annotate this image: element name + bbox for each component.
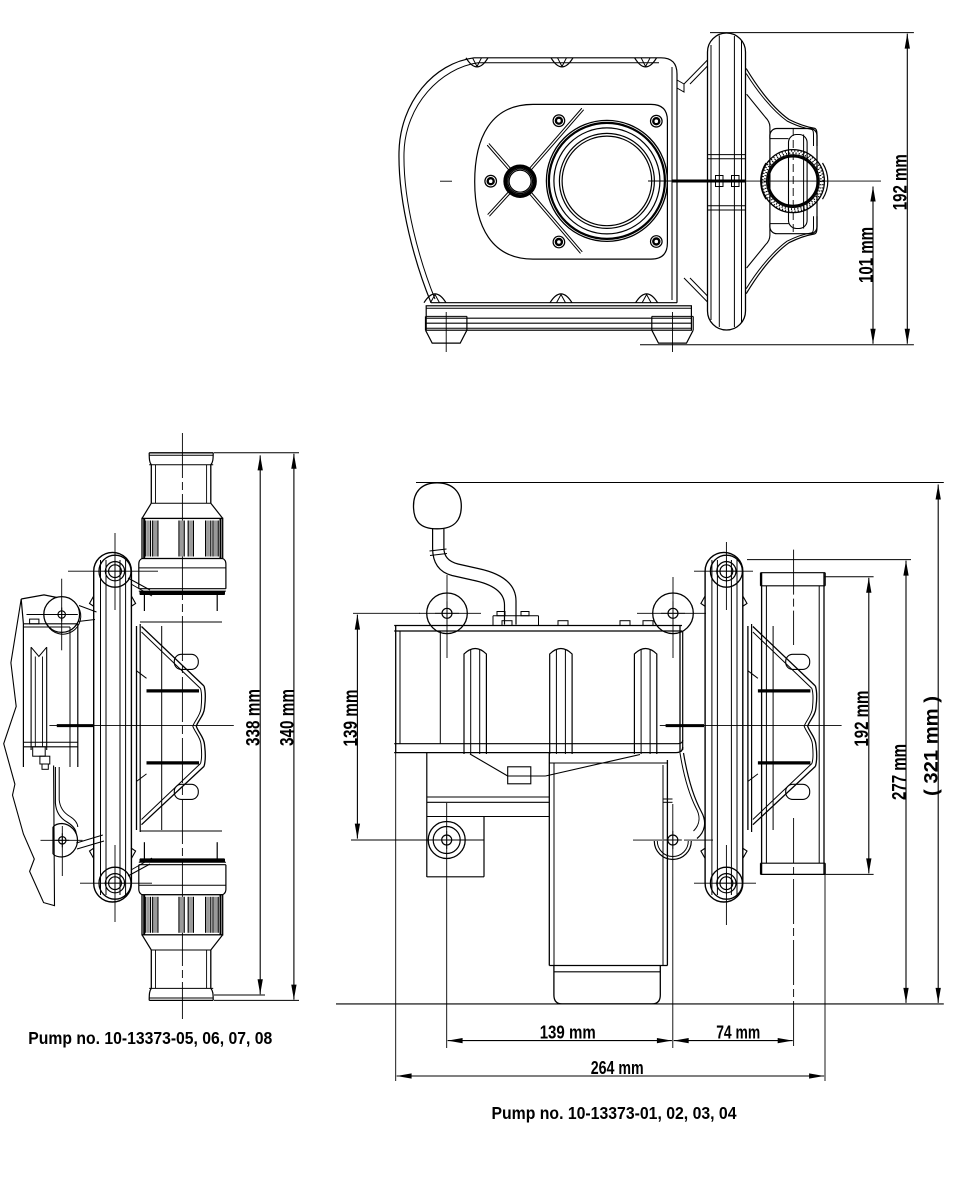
- svg-text:( 321 mm ): ( 321 mm ): [921, 696, 943, 796]
- svg-text:338 mm: 338 mm: [243, 689, 265, 746]
- svg-text:340 mm: 340 mm: [276, 689, 298, 746]
- svg-text:Pump no. 10-13373-05, 06, 07,: Pump no. 10-13373-05, 06, 07, 08: [28, 1028, 272, 1048]
- svg-text:Pump no. 10-13373-01, 02, 03,: Pump no. 10-13373-01, 02, 03, 04: [492, 1103, 737, 1123]
- svg-text:101 mm: 101 mm: [855, 227, 877, 283]
- svg-text:277 mm: 277 mm: [888, 744, 910, 800]
- svg-text:264 mm: 264 mm: [591, 1058, 644, 1078]
- svg-text:139 mm: 139 mm: [540, 1023, 596, 1043]
- svg-text:139 mm: 139 mm: [340, 690, 362, 747]
- svg-text:192 mm: 192 mm: [851, 691, 873, 747]
- svg-text:192 mm: 192 mm: [890, 154, 912, 210]
- svg-text:74 mm: 74 mm: [716, 1023, 760, 1043]
